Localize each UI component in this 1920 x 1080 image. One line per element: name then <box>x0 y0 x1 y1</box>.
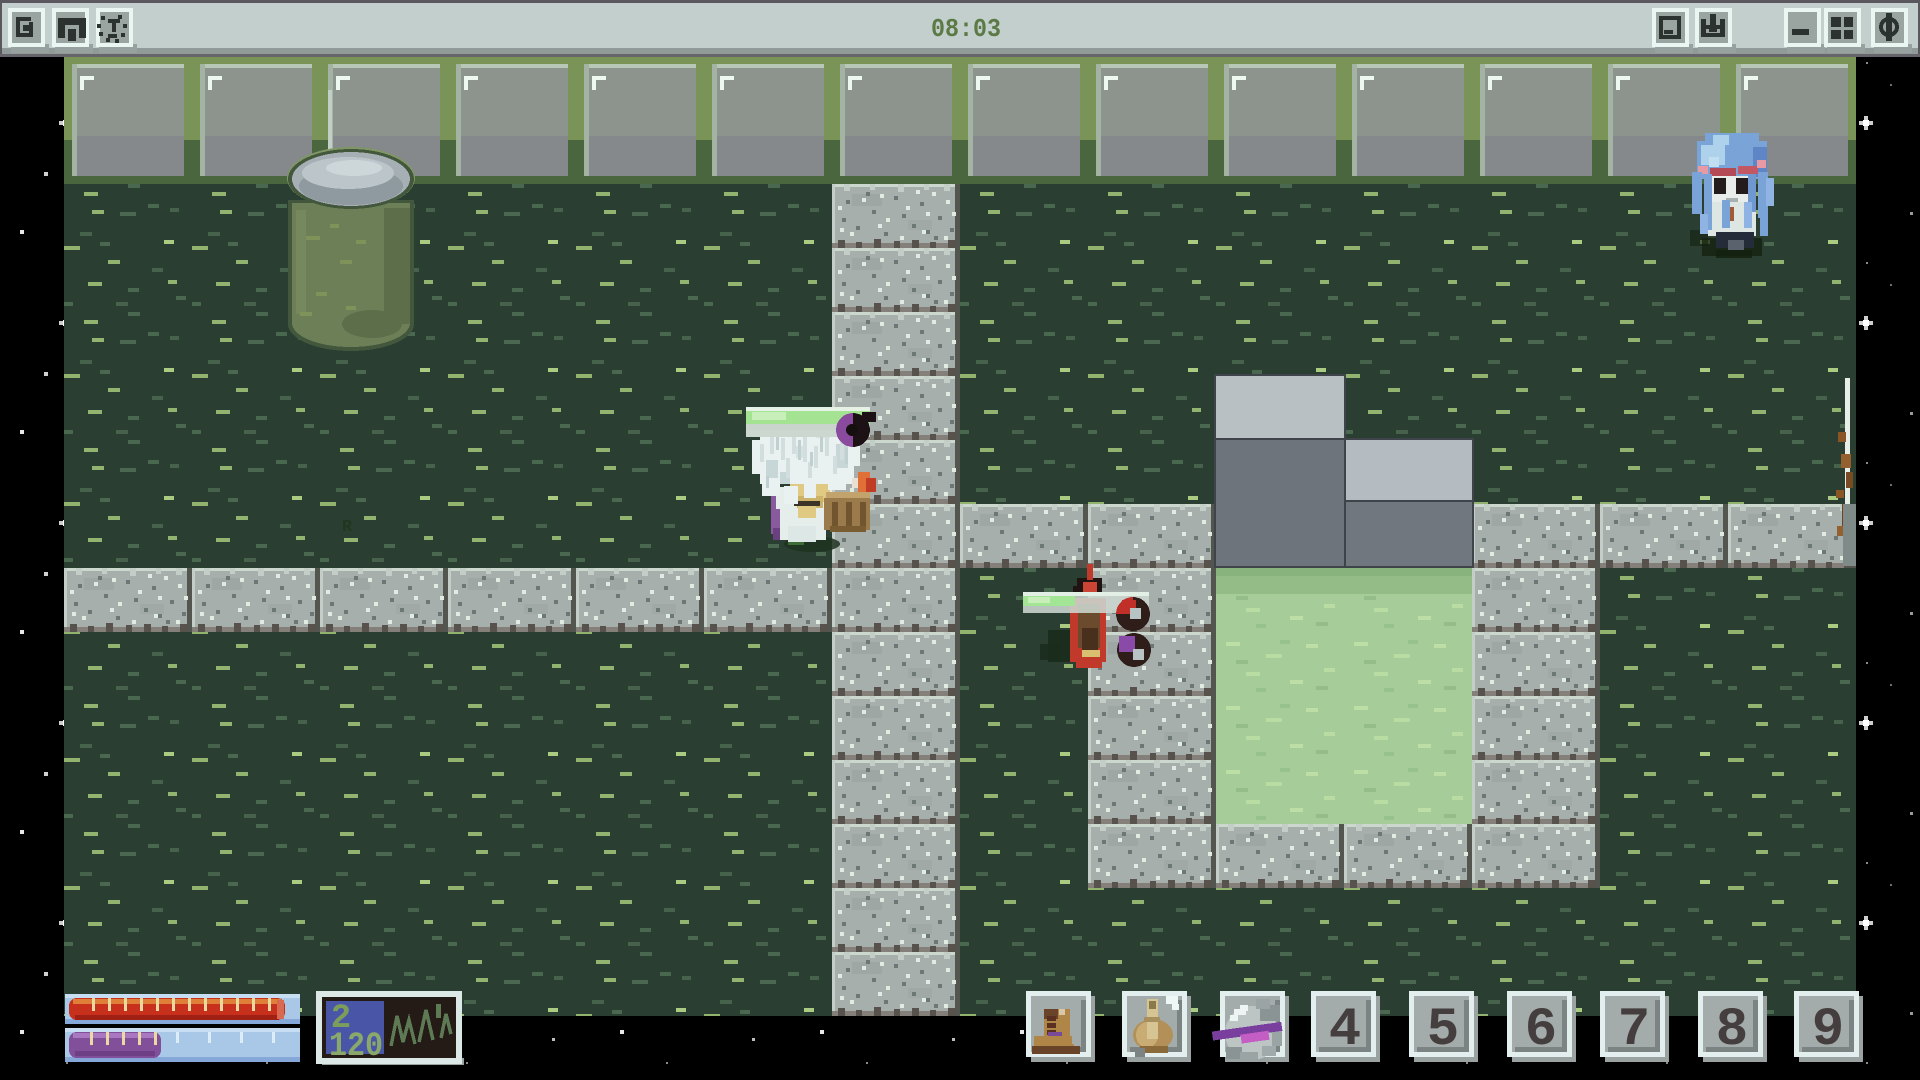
svg-text:9: 9 <box>1812 1000 1844 1061</box>
svg-text:8: 8 <box>1716 1000 1748 1061</box>
svg-text:08:03: 08:03 <box>931 14 1001 44</box>
svg-text:5: 5 <box>1427 1000 1459 1061</box>
svg-text:R: R <box>342 518 353 537</box>
svg-text:7: 7 <box>1618 1000 1650 1061</box>
svg-text:120: 120 <box>329 1028 383 1066</box>
svg-text:4: 4 <box>1329 1000 1361 1061</box>
svg-text:6: 6 <box>1525 1000 1557 1061</box>
